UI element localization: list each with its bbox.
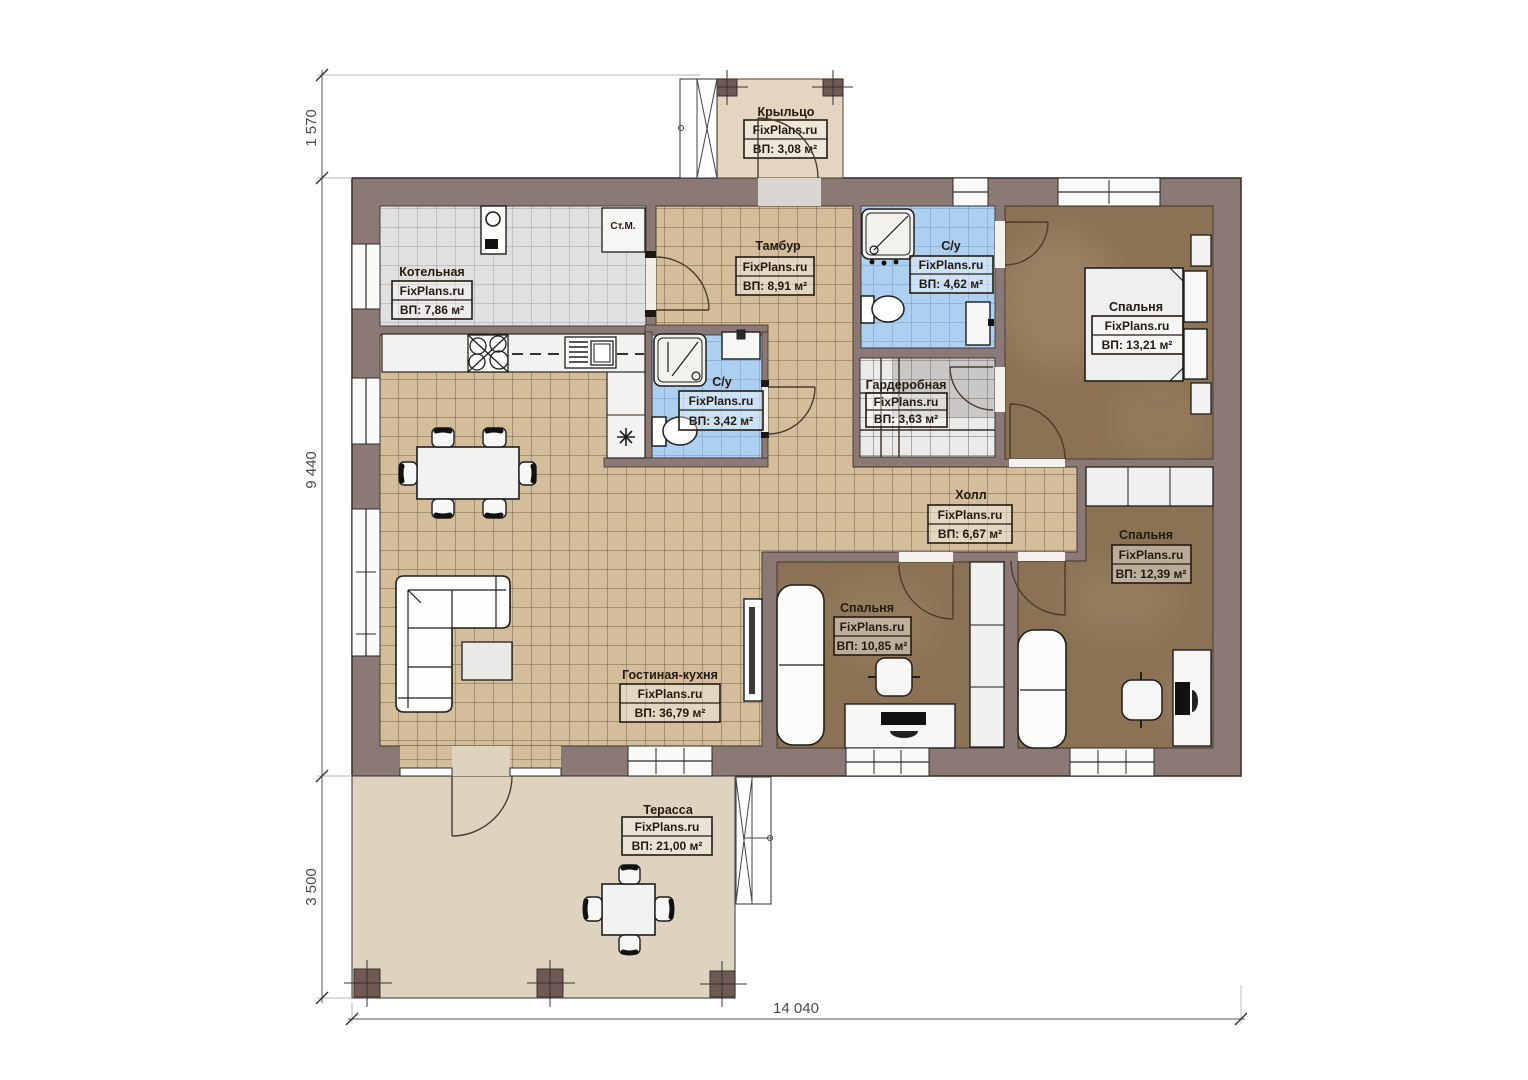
svg-text:FixPlans.ru: FixPlans.ru [1119, 548, 1184, 562]
svg-text:ВП: 21,00 м²: ВП: 21,00 м² [632, 839, 703, 853]
svg-text:ВП: 3,63 м²: ВП: 3,63 м² [874, 412, 938, 426]
svg-text:С/у: С/у [941, 239, 961, 253]
svg-text:FixPlans.ru: FixPlans.ru [938, 508, 1003, 522]
svg-text:FixPlans.ru: FixPlans.ru [874, 395, 939, 409]
svg-text:Терасса: Терасса [643, 803, 694, 817]
svg-text:Гостиная-кухня: Гостиная-кухня [622, 668, 718, 682]
svg-text:ВП: 36,79 м²: ВП: 36,79 м² [635, 706, 706, 720]
svg-text:Холл: Холл [955, 488, 986, 502]
svg-text:ВП: 7,86 м²: ВП: 7,86 м² [400, 303, 464, 317]
svg-text:ВП: 4,62 м²: ВП: 4,62 м² [919, 277, 983, 291]
svg-text:Крыльцо: Крыльцо [758, 105, 815, 119]
svg-text:FixPlans.ru: FixPlans.ru [743, 260, 808, 274]
svg-text:FixPlans.ru: FixPlans.ru [400, 284, 465, 298]
svg-text:FixPlans.ru: FixPlans.ru [635, 820, 700, 834]
svg-text:ВП: 12,39 м²: ВП: 12,39 м² [1116, 567, 1187, 581]
svg-text:Гардеробная: Гардеробная [866, 378, 947, 392]
svg-text:ВП: 6,67 м²: ВП: 6,67 м² [938, 527, 1002, 541]
svg-text:Спальня: Спальня [840, 601, 894, 615]
svg-text:FixPlans.ru: FixPlans.ru [753, 123, 818, 137]
svg-text:9 440: 9 440 [303, 451, 320, 489]
svg-text:ВП: 13,21 м²: ВП: 13,21 м² [1102, 338, 1173, 352]
svg-text:FixPlans.ru: FixPlans.ru [840, 620, 905, 634]
svg-text:14 040: 14 040 [773, 1000, 819, 1017]
svg-text:FixPlans.ru: FixPlans.ru [1105, 319, 1170, 333]
svg-text:Спальня: Спальня [1109, 300, 1163, 314]
svg-text:1 570: 1 570 [303, 109, 320, 147]
svg-text:FixPlans.ru: FixPlans.ru [638, 687, 703, 701]
svg-text:FixPlans.ru: FixPlans.ru [919, 258, 984, 272]
svg-text:FixPlans.ru: FixPlans.ru [689, 394, 754, 408]
svg-text:Тамбур: Тамбур [755, 239, 801, 253]
svg-text:3 500: 3 500 [303, 868, 320, 906]
svg-text:ВП: 3,42 м²: ВП: 3,42 м² [689, 414, 753, 428]
svg-text:Спальня: Спальня [1119, 528, 1173, 542]
svg-text:ВП: 8,91 м²: ВП: 8,91 м² [743, 279, 807, 293]
svg-text:С/у: С/у [712, 375, 732, 389]
svg-text:Ст.М.: Ст.М. [610, 221, 635, 232]
svg-text:Котельная: Котельная [399, 265, 464, 279]
svg-text:ВП: 10,85 м²: ВП: 10,85 м² [837, 639, 908, 653]
